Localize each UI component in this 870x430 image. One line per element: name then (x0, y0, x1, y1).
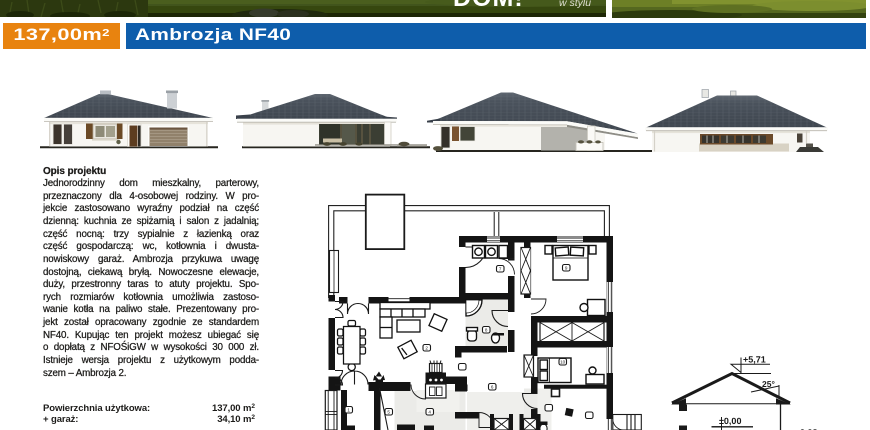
svg-text:±0,00: ±0,00 (719, 416, 741, 426)
svg-text:5: 5 (387, 410, 390, 415)
svg-text:2: 2 (425, 346, 428, 351)
svg-text:6: 6 (491, 385, 494, 390)
svg-text:10: 10 (560, 360, 566, 365)
svg-text:9: 9 (565, 266, 568, 271)
svg-text:7: 7 (499, 267, 502, 272)
svg-text:25°: 25° (762, 379, 775, 389)
svg-text:4: 4 (428, 410, 431, 415)
svg-text:+5,71: +5,71 (743, 355, 766, 365)
svg-text:1: 1 (347, 408, 350, 413)
svg-text:8: 8 (485, 328, 488, 333)
